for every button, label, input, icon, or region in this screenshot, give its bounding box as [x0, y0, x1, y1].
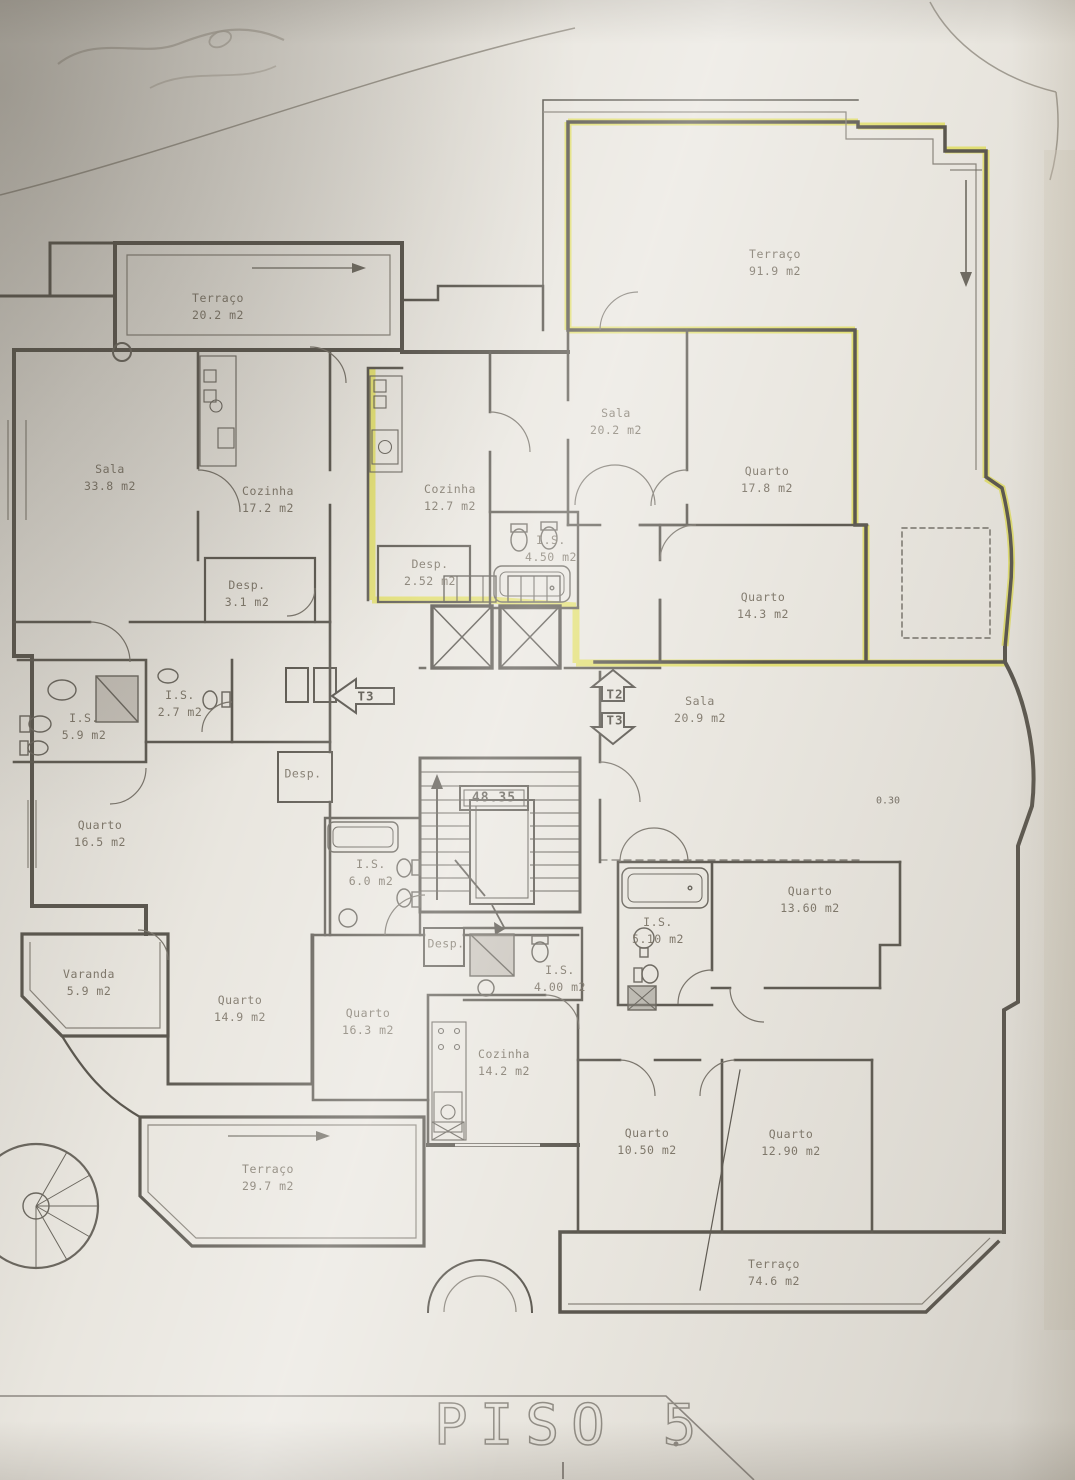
room-label-sala-20-2: Sala20.2 m2 — [590, 405, 642, 440]
room-label-quarto-17-8: Quarto17.8 m2 — [741, 463, 793, 498]
room-label-is-2-7: I.S.2.7 m2 — [158, 687, 203, 722]
room-label-is-4-00: I.S.4.00 m2 — [534, 962, 586, 997]
room-label-cozinha-17-2: Cozinha17.2 m2 — [242, 483, 294, 518]
room-label-cozinha-14-2: Cozinha14.2 m2 — [478, 1046, 530, 1081]
room-label-terraco-20-2: Terraço20.2 m2 — [192, 290, 244, 325]
scanned-floorplan-page: PISO 5 Terraço20.2 m2 Terraço91.9 m2 Sal… — [0, 0, 1075, 1480]
room-label-desp-3-1: Desp.3.1 m2 — [225, 577, 270, 612]
unit-marker-t3-down: T3 — [606, 713, 623, 728]
room-label-is-5-9: I.S.5.9 m2 — [62, 710, 107, 745]
room-label-quarto-14-9: Quarto14.9 m2 — [214, 992, 266, 1027]
spiral-stair — [0, 1144, 98, 1268]
unit-marker-t2-up: T2 — [606, 687, 623, 702]
unit-marker-shapes — [332, 670, 634, 744]
room-label-sala-20-9: Sala20.9 m2 — [674, 693, 726, 728]
title-block: PISO 5 — [0, 1393, 754, 1480]
room-label-terraco-29-7: Terraço29.7 m2 — [242, 1161, 294, 1196]
dimension-label: 0.30 — [876, 796, 900, 807]
room-label-cozinha-12-7: Cozinha12.7 m2 — [424, 481, 476, 516]
stairwell — [420, 758, 580, 935]
room-label-is-5-10: I.S.5.10 m2 — [632, 914, 684, 949]
level-marker: 48.35 — [472, 791, 516, 806]
room-label-quarto-16-3: Quarto16.3 m2 — [342, 1005, 394, 1040]
room-label-quarto-13-60: Quarto13.60 m2 — [780, 883, 839, 918]
thin-details — [8, 112, 990, 1312]
room-label-quarto-12-90: Quarto12.90 m2 — [761, 1126, 820, 1161]
floor-title: PISO 5 — [434, 1393, 708, 1458]
room-label-quarto-10-50: Quarto10.50 m2 — [617, 1125, 676, 1160]
room-label-terraco-91-9: Terraço91.9 m2 — [749, 246, 801, 281]
room-label-is-6-0: I.S.6.0 m2 — [349, 856, 394, 891]
room-label-sala-33-8: Sala33.8 m2 — [84, 461, 136, 496]
floorplan-drawing: PISO 5 — [0, 0, 1075, 1480]
room-label-quarto-14-3: Quarto14.3 m2 — [737, 589, 789, 624]
highlighted-walls — [372, 122, 1012, 663]
room-label-is-4-50: I.S.4.50 m2 — [525, 532, 577, 567]
room-label-desp-left: Desp. — [284, 765, 321, 782]
room-label-quarto-16-5: Quarto16.5 m2 — [74, 817, 126, 852]
exterior-walls — [0, 100, 1034, 1312]
room-label-desp-mid: Desp. — [427, 935, 464, 952]
unit-marker-t3-left: T3 — [357, 689, 374, 704]
room-label-terraco-74-6: Terraço74.6 m2 — [748, 1256, 800, 1291]
room-label-desp-2-52: Desp.2.52 m2 — [404, 556, 456, 591]
room-label-varanda-5-9: Varanda5.9 m2 — [63, 966, 115, 1001]
